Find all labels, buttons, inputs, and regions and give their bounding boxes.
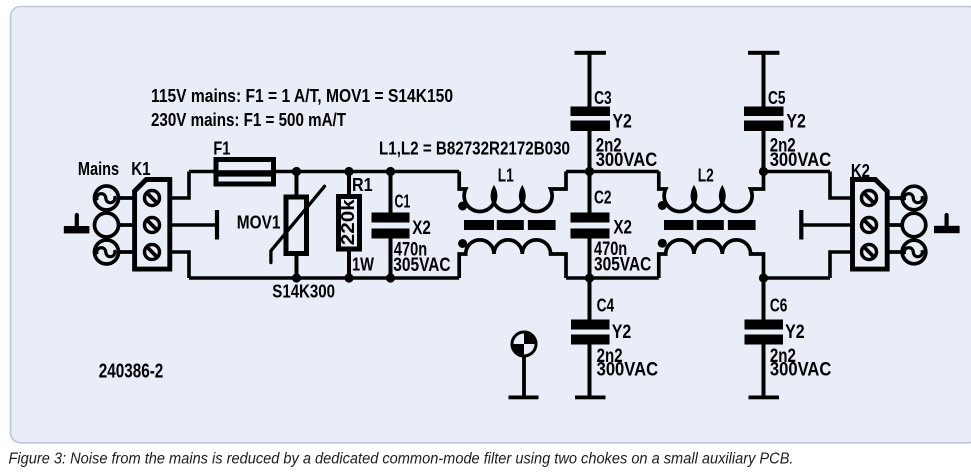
svg-text:220k: 220k	[338, 198, 358, 245]
svg-text:305VAC: 305VAC	[594, 254, 651, 276]
svg-text:Y2: Y2	[786, 111, 806, 133]
svg-text:X2: X2	[412, 217, 431, 239]
svg-text:1W: 1W	[352, 254, 374, 274]
svg-text:C4: C4	[597, 295, 615, 315]
svg-text:C2: C2	[594, 188, 612, 208]
svg-text:Figure 3: Noise from the mains: Figure 3: Noise from the mains is reduce…	[9, 451, 794, 468]
svg-text:R1: R1	[352, 175, 373, 195]
svg-text:MOV1: MOV1	[237, 213, 281, 233]
svg-text:Y2: Y2	[612, 321, 632, 343]
svg-text:300VAC: 300VAC	[596, 149, 658, 171]
svg-text:Y2: Y2	[785, 321, 805, 343]
svg-text:230V mains: F1 = 500 mA/T: 230V mains: F1 = 500 mA/T	[151, 110, 346, 130]
svg-text:240386-2: 240386-2	[99, 361, 164, 383]
svg-text:300VAC: 300VAC	[597, 359, 659, 381]
svg-text:115V mains: F1 = 1 A/T, MOV1 =: 115V mains: F1 = 1 A/T, MOV1 = S14K150	[151, 86, 453, 106]
svg-text:K2: K2	[851, 161, 870, 181]
svg-text:C1: C1	[395, 192, 411, 212]
svg-text:305VAC: 305VAC	[393, 254, 450, 276]
svg-text:S14K300: S14K300	[272, 282, 335, 302]
svg-text:Mains: Mains	[78, 159, 119, 179]
svg-text:F1: F1	[213, 138, 230, 158]
svg-text:K1: K1	[131, 159, 150, 179]
svg-text:X2: X2	[613, 217, 632, 239]
svg-text:Y2: Y2	[612, 111, 632, 133]
svg-text:L1: L1	[498, 166, 514, 186]
svg-text:C6: C6	[770, 295, 788, 315]
svg-text:C3: C3	[594, 88, 612, 108]
svg-text:L1,L2 = B82732R2172B030: L1,L2 = B82732R2172B030	[379, 138, 570, 158]
svg-text:300VAC: 300VAC	[770, 149, 832, 171]
svg-text:L2: L2	[698, 166, 714, 186]
svg-text:C5: C5	[768, 88, 786, 108]
svg-text:300VAC: 300VAC	[770, 359, 832, 381]
